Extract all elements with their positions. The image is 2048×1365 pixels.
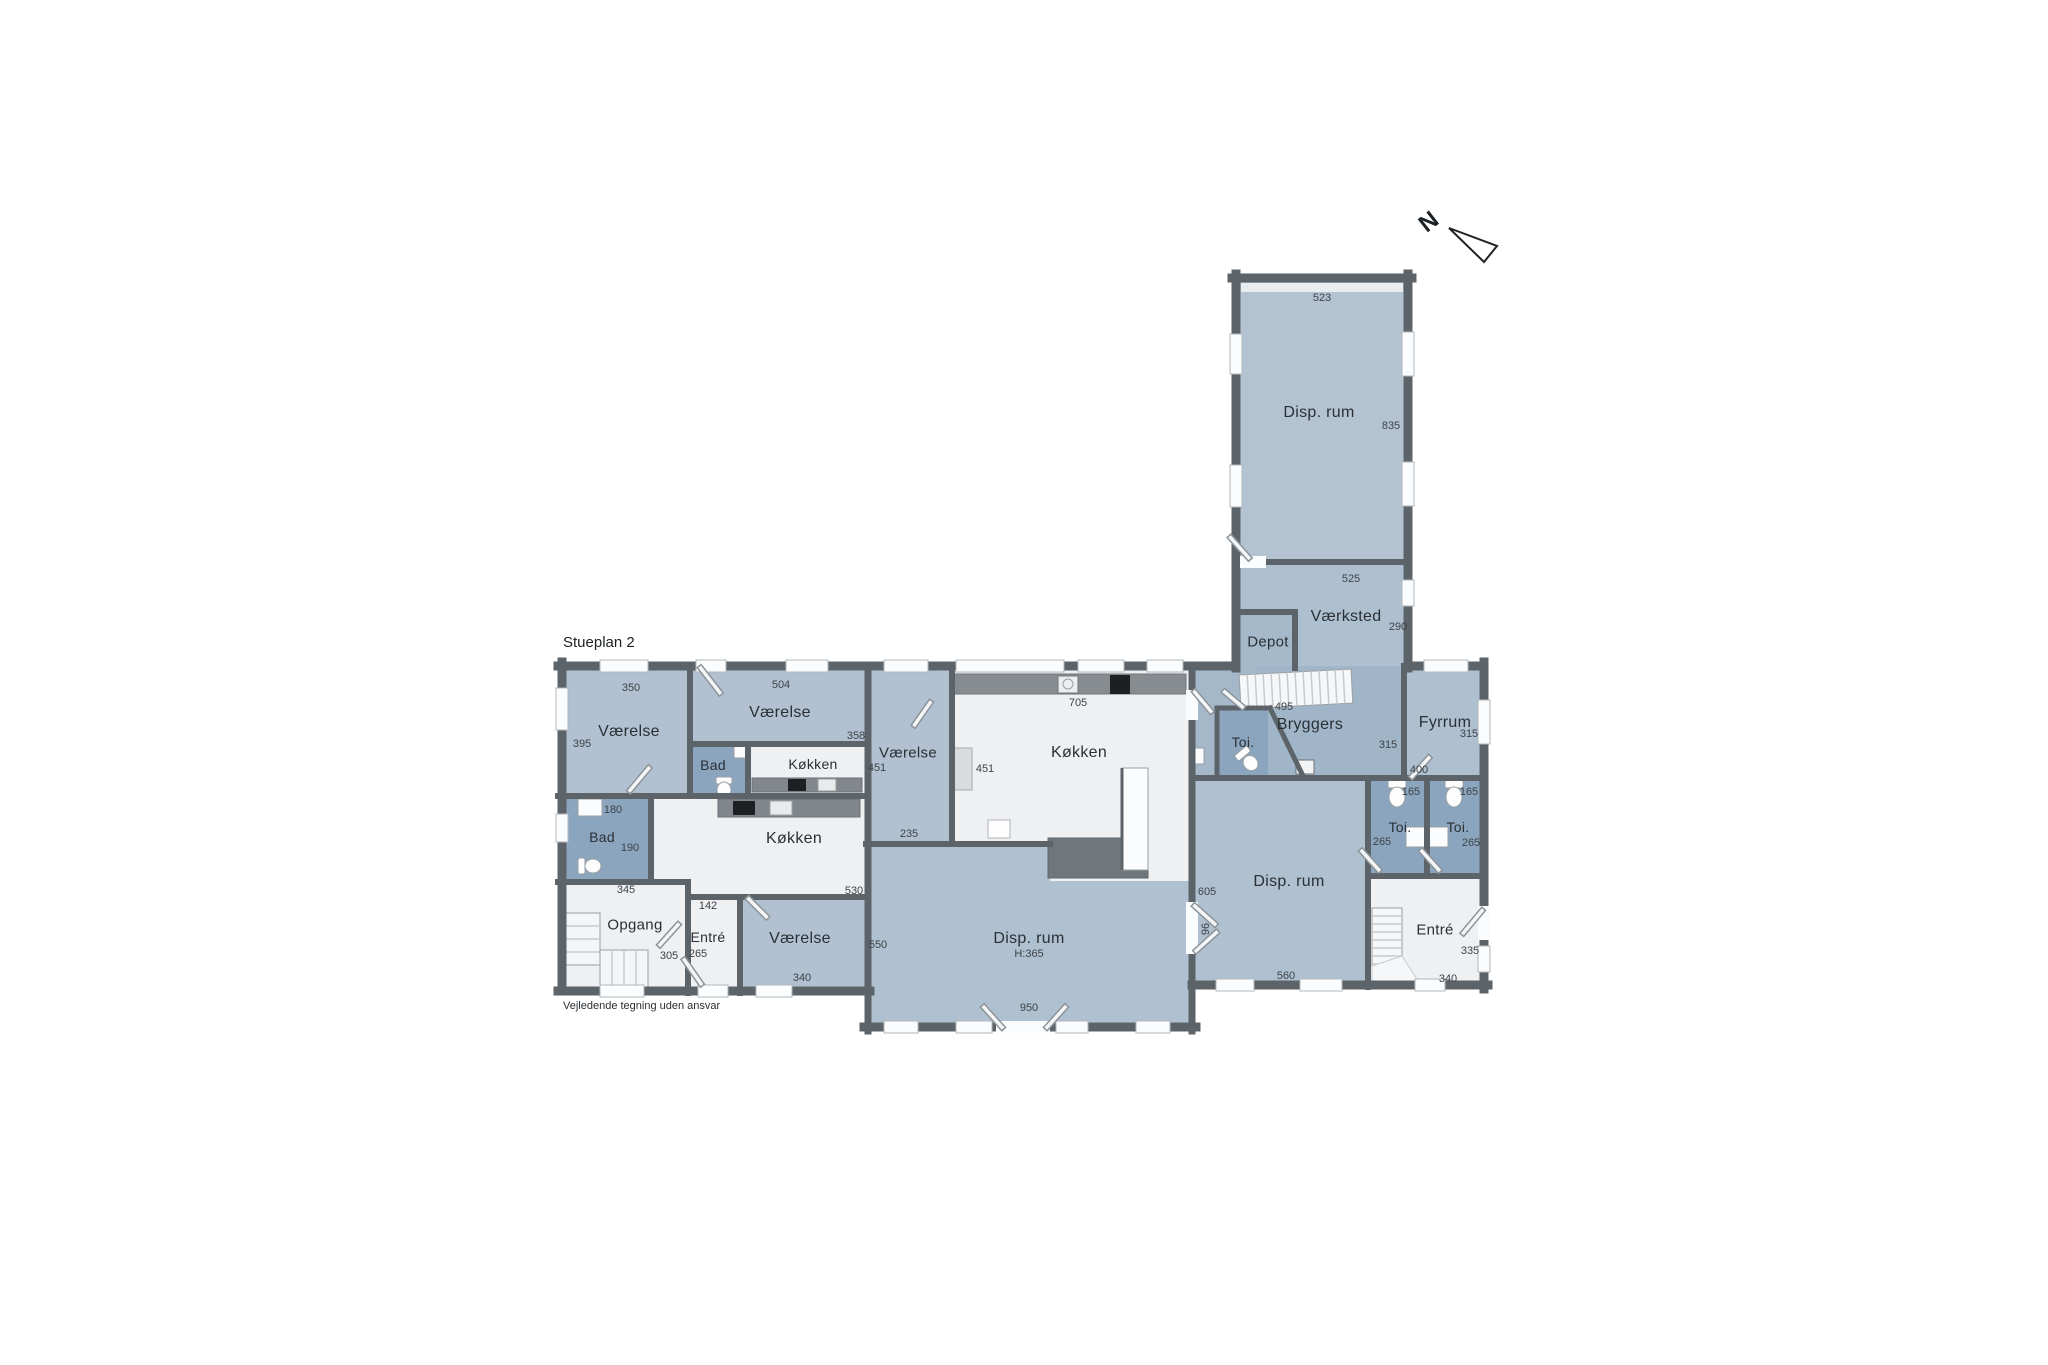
kitchen3-counter <box>950 674 1186 694</box>
window-sill <box>1241 283 1403 292</box>
dim-290: 290 <box>1389 621 1407 633</box>
room-fills <box>562 278 1484 1031</box>
dim-96: 96 <box>1200 923 1212 935</box>
dim-504: 504 <box>772 679 790 691</box>
dim-142: 142 <box>699 900 717 912</box>
dim-165-toi2: 165 <box>1402 786 1420 798</box>
dim-560: 560 <box>1277 970 1295 982</box>
dim-705: 705 <box>1069 697 1087 709</box>
toilet-icon <box>578 858 601 874</box>
dim-523: 523 <box>1313 292 1331 304</box>
room-label-koekken-3: Køkken <box>1051 744 1107 762</box>
room-label-vaerelse-1: Værelse <box>598 723 660 741</box>
room-label-entre-east: Entré <box>1416 922 1453 939</box>
dim-height-note: H:365 <box>1014 948 1043 960</box>
room-label-koekken-2: Køkken <box>766 830 822 848</box>
dim-180: 180 <box>604 804 622 816</box>
room-label-disp-rum-east: Disp. rum <box>1253 873 1324 891</box>
floorplan-page: N Stueplan 2 Vejledende tegning uden ans… <box>0 0 2048 1365</box>
dim-395: 395 <box>573 738 591 750</box>
room-label-disp-rum-north: Disp. rum <box>1283 404 1354 422</box>
plan-disclaimer: Vejledende tegning uden ansvar <box>563 1000 720 1012</box>
room-label-depot: Depot <box>1247 634 1289 651</box>
dim-495: 495 <box>1275 701 1293 713</box>
dim-265-toi3: 265 <box>1462 837 1480 849</box>
dim-265-entre1: 265 <box>689 948 707 960</box>
dim-265-toi2: 265 <box>1373 836 1391 848</box>
dim-340-vaerelse3: 340 <box>793 972 811 984</box>
room-label-bryggers: Bryggers <box>1277 716 1343 734</box>
room-label-toi-2: Toi. <box>1389 819 1412 835</box>
room-label-vaerelse-3: Værelse <box>769 930 831 948</box>
tall-cabinet <box>1122 768 1148 870</box>
dim-190: 190 <box>621 842 639 854</box>
stove-icon <box>1110 675 1130 694</box>
dim-315-fyrrum: 315 <box>1460 728 1478 740</box>
sink-icon <box>578 799 602 816</box>
dim-605: 605 <box>1198 886 1216 898</box>
sink-icon <box>818 779 836 791</box>
room-label-bad-2: Bad <box>589 829 615 845</box>
plan-title: Stueplan 2 <box>563 634 635 651</box>
dim-335: 335 <box>1461 945 1479 957</box>
dim-451-koekken: 451 <box>976 763 994 775</box>
dim-350: 350 <box>622 682 640 694</box>
room-label-entre-1: Entré <box>691 929 726 945</box>
room-label-toi-1: Toi. <box>1232 734 1255 750</box>
kitchen2-counter <box>718 799 860 817</box>
north-label: N <box>1414 206 1444 238</box>
room-label-opgang: Opgang <box>607 917 662 934</box>
dim-345: 345 <box>617 884 635 896</box>
room-label-disp-rum-central: Disp. rum <box>993 930 1064 948</box>
dim-305: 305 <box>660 950 678 962</box>
dim-530: 530 <box>845 885 863 897</box>
cabinet-icon <box>988 820 1010 838</box>
room-label-bad-1: Bad <box>700 757 726 773</box>
stairs-bryggers <box>1239 669 1353 709</box>
room-label-koekken-1: Køkken <box>788 756 837 772</box>
dim-235: 235 <box>900 828 918 840</box>
stove-icon <box>788 779 806 791</box>
kitchen1-counter <box>752 778 862 792</box>
dim-340-entre: 340 <box>1439 973 1457 985</box>
room-label-toi-3: Toi. <box>1447 819 1470 835</box>
room-label-vaerksted: Værksted <box>1311 608 1382 626</box>
dim-358: 358 <box>847 730 865 742</box>
dim-950: 950 <box>1020 1002 1038 1014</box>
dim-165-toi3: 165 <box>1460 786 1478 798</box>
room-label-vaerelse-2: Værelse <box>749 704 811 722</box>
sink-icon <box>1429 827 1448 847</box>
sink-icon <box>770 801 792 815</box>
floorplan-drawing: N <box>0 0 2048 1365</box>
dim-451-vaerelse: 451 <box>868 762 886 774</box>
dim-835: 835 <box>1382 420 1400 432</box>
dim-525: 525 <box>1342 573 1360 585</box>
dim-400: 400 <box>1410 764 1428 776</box>
dim-315-bryggers: 315 <box>1379 739 1397 751</box>
room-label-vaerelse-4: Værelse <box>879 745 937 762</box>
dim-550: 550 <box>869 939 887 951</box>
stove-icon <box>733 801 755 815</box>
north-arrow: N <box>1414 206 1497 262</box>
